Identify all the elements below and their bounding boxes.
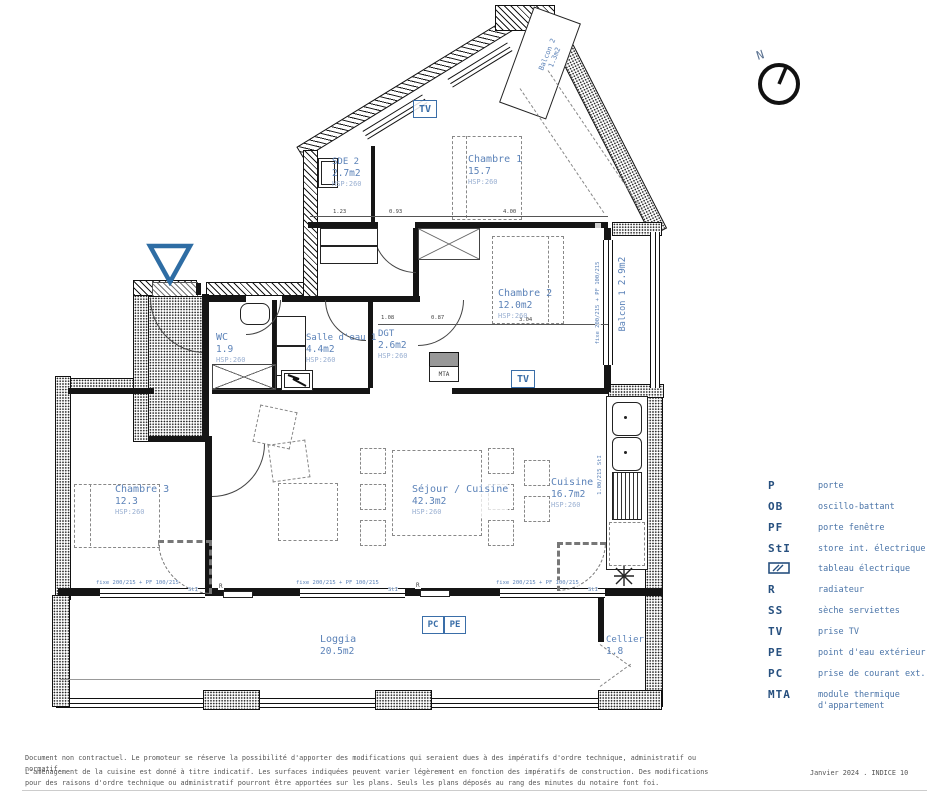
room-label-dgt: DGT 2.6m2 HSP:260 xyxy=(378,328,408,361)
legend: P porte OB oscillo-battant PF porte fenê… xyxy=(768,476,928,706)
room-name: Balcon 1 xyxy=(618,290,628,331)
loggia-pier xyxy=(598,690,662,710)
document-date: Janvier 2024 . INDICE 10 xyxy=(810,768,908,779)
dimension-value: 1.23 xyxy=(332,209,347,215)
entry-arrow-icon xyxy=(146,242,194,286)
sti-label: StI xyxy=(597,455,603,465)
legend-code: StI xyxy=(768,542,791,555)
kitchen-sink xyxy=(612,437,642,471)
room-area: 2.7m2 xyxy=(332,168,362,180)
door-arc xyxy=(418,300,464,346)
window-spec: fixe 200/215 + PF 100/215 xyxy=(595,262,601,345)
legend-label: prise de courant ext. xyxy=(818,669,925,680)
legend-code: PC xyxy=(768,667,783,680)
duct-hatch xyxy=(429,352,459,367)
room-area: 1.9 xyxy=(216,344,246,356)
legend-code: R xyxy=(768,583,776,596)
kitchen-sink xyxy=(612,402,642,436)
legend-label: tableau électrique xyxy=(818,564,910,575)
furniture-chair xyxy=(360,448,386,474)
furniture-chair xyxy=(524,460,550,486)
window-label-vertical: fixe 200/215 + PF 100/215 xyxy=(595,223,601,383)
disclaimer-line2: L'aménagement de la cuisine est donné à … xyxy=(25,767,720,788)
loggia-edge-line xyxy=(60,679,600,680)
legend-label: sèche serviettes xyxy=(818,606,900,617)
room-hsp: HSP:260 xyxy=(332,180,362,189)
legend-label: store int. électrique xyxy=(818,544,925,555)
window xyxy=(603,240,613,365)
washbasin xyxy=(276,316,306,346)
pe-label: PE xyxy=(450,620,461,630)
cabinet xyxy=(320,246,378,264)
room-hsp: HSP:260 xyxy=(378,352,408,361)
dimension-line xyxy=(310,216,608,217)
room-area: 15.7 xyxy=(468,166,522,178)
wall-segment xyxy=(148,436,210,442)
wall-segment xyxy=(452,388,608,394)
sti-label: StI xyxy=(188,587,198,593)
sti-label: StI xyxy=(588,587,598,593)
tv-socket-badge: TV xyxy=(511,370,535,388)
furniture-sofa xyxy=(268,440,311,483)
room-label-cellier: Cellier 1.8 xyxy=(606,634,644,658)
room-name: Chambre 2 xyxy=(498,288,552,299)
room-label-cuisine: Cuisine 16.7m2 HSP:260 xyxy=(551,477,593,510)
furniture-chair xyxy=(488,520,514,546)
window-label-vertical: 1.00/215 StI xyxy=(597,415,603,535)
wall-segment xyxy=(202,294,209,440)
compass-north-label: N xyxy=(755,47,766,63)
compass: N xyxy=(746,46,812,112)
toilet xyxy=(240,303,270,325)
light-point-icon xyxy=(612,564,636,588)
wall-segment xyxy=(68,388,154,394)
room-hsp: HSP:260 xyxy=(306,356,376,365)
room-label-balcon1: Balcon 1 2.9m2 xyxy=(617,249,629,339)
legend-label: porte fenêtre xyxy=(818,523,885,534)
wardrobe xyxy=(418,228,480,260)
kitchen-appliance xyxy=(609,522,645,566)
window-spec: 1.00/215 xyxy=(597,468,603,495)
room-hsp: HSP:260 xyxy=(412,508,508,517)
room-name: Cuisine xyxy=(551,477,593,488)
room-label-sde2: SDE 2 2.7m2 HSP:260 xyxy=(332,156,362,189)
pc-label: PC xyxy=(428,620,439,630)
tableau-electrique-icon xyxy=(768,562,790,574)
dimension-value: 0.87 xyxy=(430,315,445,321)
room-hsp: HSP:260 xyxy=(551,501,593,510)
room-name: WC xyxy=(216,332,228,343)
dimension-value: 0.93 xyxy=(388,209,403,215)
room-hsp: HSP:260 xyxy=(468,178,522,187)
room-area: 4.4m2 xyxy=(306,344,376,356)
sink-drain-dot xyxy=(624,416,627,419)
legend-code: PF xyxy=(768,521,783,534)
tv-label: TV xyxy=(517,374,529,385)
dimension-value: 1.08 xyxy=(380,315,395,321)
room-label-loggia: Loggia 20.5m2 xyxy=(320,634,356,658)
window-spec: fixe 200/215 + PF 100/215 xyxy=(96,580,179,586)
tv-socket-badge: TV xyxy=(413,100,437,118)
sink-drain-dot xyxy=(624,451,627,454)
room-name: Salle d'eau 1 xyxy=(306,333,376,343)
radiator xyxy=(420,590,450,597)
room-area: 12.3 xyxy=(115,496,169,508)
furniture-sideboard xyxy=(278,483,338,541)
room-hsp: HSP:260 xyxy=(216,356,246,365)
furniture-bed-pillow xyxy=(466,136,467,218)
room-area: 42.3m2 xyxy=(412,496,508,508)
entry-triangle xyxy=(150,246,190,282)
loggia-pier xyxy=(375,690,432,710)
door-arc xyxy=(373,230,416,273)
window-label: fixe 200/215 + PF 100/215 xyxy=(296,580,379,586)
legend-label: module thermique d'appartement xyxy=(818,690,918,712)
legend-code: MTA xyxy=(768,688,791,701)
tv-label: TV xyxy=(419,104,431,115)
legend-code: OB xyxy=(768,500,783,513)
window-spec: fixe 200/215 + PF 100/215 xyxy=(296,580,379,586)
wall-segment xyxy=(208,296,246,302)
furniture-chair xyxy=(488,448,514,474)
furniture-chair xyxy=(360,520,386,546)
room-name: SDE 2 xyxy=(332,157,359,167)
legend-code: TV xyxy=(768,625,783,638)
room-name: Séjour / Cuisine xyxy=(412,484,508,495)
legend-label: point d'eau extérieur xyxy=(818,648,925,659)
pc-socket-badge: PC xyxy=(422,616,444,634)
legend-code: P xyxy=(768,479,776,492)
loggia-pier xyxy=(203,690,260,710)
window-label: fixe 200/215 + PF 100/215 xyxy=(96,580,179,586)
room-area: 2.6m2 xyxy=(378,340,408,352)
kitchen-drainer xyxy=(612,472,642,520)
legend-code: PE xyxy=(768,646,783,659)
room-label-chambre1: Chambre 1 15.7 HSP:260 xyxy=(468,154,522,187)
legend-label: prise TV xyxy=(818,627,859,638)
floorplan-document: MTA 1.23 0.93 4.00 1.08 0.87 3.04 R R fi… xyxy=(0,0,948,800)
wall-segment xyxy=(55,376,71,600)
balcony-rail xyxy=(650,232,660,388)
radiator-label: R xyxy=(218,583,224,590)
radiator xyxy=(223,591,253,598)
sti-label: StI xyxy=(388,587,398,593)
room-name: Loggia xyxy=(320,634,356,645)
legend-label: porte xyxy=(818,481,844,492)
room-label-sejour: Séjour / Cuisine 42.3m2 HSP:260 xyxy=(412,484,508,517)
radiator-label: R xyxy=(415,582,421,589)
wardrobe xyxy=(212,364,276,390)
room-hsp: HSP:260 xyxy=(498,312,552,321)
wall-segment xyxy=(371,146,375,224)
legend-label: radiateur xyxy=(818,585,864,596)
legend-code: SS xyxy=(768,604,783,617)
room-area: 12.0m2 xyxy=(498,300,552,312)
furniture-chair xyxy=(360,484,386,510)
mta-box: MTA xyxy=(429,366,459,382)
loggia-rail xyxy=(56,698,662,708)
lightning-icon xyxy=(282,371,312,390)
wall-segment xyxy=(206,282,308,296)
room-area: 1.8 xyxy=(606,646,644,658)
cabinet xyxy=(320,228,378,246)
room-name: Cellier xyxy=(606,635,644,645)
mta-label: MTA xyxy=(439,371,450,378)
window-spec: fixe 200/215 + PF 100/215 xyxy=(496,580,579,586)
door-arc xyxy=(212,444,265,497)
door-leaf xyxy=(196,283,201,295)
room-name: Chambre 1 xyxy=(468,154,522,165)
room-name: DGT xyxy=(378,329,394,339)
dimension-line xyxy=(378,324,608,325)
dimension-value: 4.00 xyxy=(502,209,517,215)
room-label-chambre2: Chambre 2 12.0m2 HSP:260 xyxy=(498,288,552,321)
furniture-chair xyxy=(524,496,550,522)
room-label-salle-eau: Salle d'eau 1 4.4m2 HSP:260 xyxy=(306,332,376,365)
legend-label: oscillo-battant xyxy=(818,502,895,513)
room-label-wc: WC 1.9 HSP:260 xyxy=(216,332,246,365)
cellier-door-dashed xyxy=(600,664,631,687)
room-label-chambre3: Chambre 3 12.3 HSP:260 xyxy=(115,484,169,517)
room-name: Chambre 3 xyxy=(115,484,169,495)
room-hsp: HSP:260 xyxy=(115,508,169,517)
tableau-electrique-box xyxy=(281,370,313,391)
room-area: 2.9m2 xyxy=(617,257,628,286)
furniture-bed-pillow xyxy=(90,484,91,546)
pe-socket-badge: PE xyxy=(444,616,466,634)
room-area: 16.7m2 xyxy=(551,489,593,501)
loggia-pier xyxy=(52,595,70,707)
page-bottom-rule xyxy=(22,790,927,791)
compass-needle xyxy=(779,65,787,84)
room-area: 20.5m2 xyxy=(320,646,356,658)
window-label: fixe 200/215 + PF 100/215 xyxy=(496,580,579,586)
